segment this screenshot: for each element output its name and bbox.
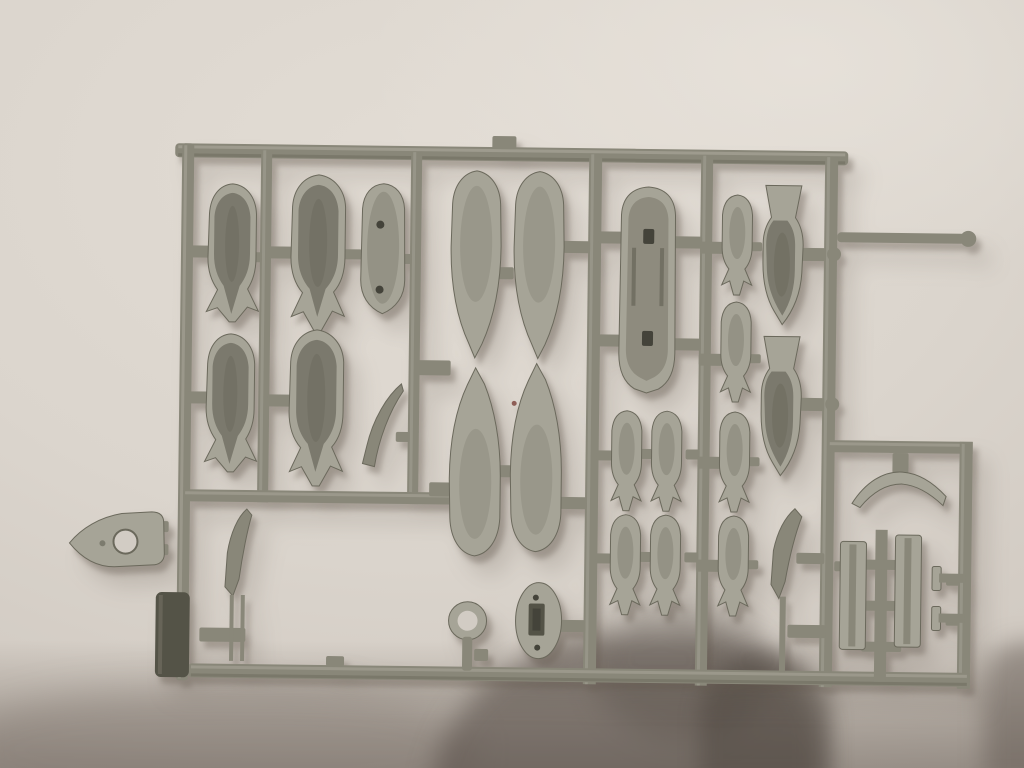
bomb-small-e2 xyxy=(720,302,751,402)
bomb-half-a1 xyxy=(206,184,260,323)
bomb-half-b1 xyxy=(290,175,346,332)
droptank-half-c3 xyxy=(448,368,501,557)
sprue-gate xyxy=(595,553,611,563)
sprue-gate xyxy=(800,248,826,261)
droptank-half-c2 xyxy=(513,171,565,359)
sprue-gate xyxy=(186,391,208,403)
bomb-small-d5 xyxy=(650,515,681,615)
tank-half-d1 xyxy=(618,187,677,394)
bomb-small-e3 xyxy=(719,412,750,512)
sprue-gate xyxy=(417,360,451,375)
runner-vertical-b xyxy=(257,150,272,502)
photo-of-model-kit-sprue xyxy=(0,0,1024,768)
sprue-gate xyxy=(700,242,724,254)
sprue-gate xyxy=(674,236,702,248)
runner-box-right xyxy=(957,442,973,689)
ring-i1 xyxy=(448,602,489,671)
sprue-gate xyxy=(199,627,245,642)
sprue-gate xyxy=(673,338,701,350)
oval-plate-i2 xyxy=(515,582,562,659)
sprue-gate xyxy=(597,450,613,460)
sprue-gate xyxy=(697,457,721,469)
bomb-finned-half-f1 xyxy=(762,185,804,324)
injection-gate-stub xyxy=(837,229,976,247)
bomb-small-e4 xyxy=(718,516,749,616)
fin-b4 xyxy=(362,383,403,466)
sprue-gate xyxy=(787,625,825,638)
bomb-small-d2 xyxy=(611,411,642,511)
bomb-half-a2 xyxy=(204,334,258,473)
sprue-gate xyxy=(696,560,720,572)
bomb-finned-half-f2 xyxy=(760,336,802,475)
strip-g2b xyxy=(894,535,921,647)
sprue-gate xyxy=(562,241,590,253)
strip-g2a xyxy=(839,541,866,649)
sprue-gate xyxy=(559,497,587,509)
sprue-gate xyxy=(396,432,410,442)
droptank-half-c4 xyxy=(509,363,562,552)
tank-half-b3 xyxy=(360,183,406,314)
droptank-half-c1 xyxy=(450,171,502,359)
wing-fairing-g1 xyxy=(852,471,946,508)
sprue-gate xyxy=(892,453,908,473)
runner-bottom xyxy=(188,663,970,687)
runner-box-top xyxy=(828,440,973,454)
sprue-gate xyxy=(429,482,451,496)
blade-f3 xyxy=(770,508,802,672)
dark-plate-h2 xyxy=(155,592,190,677)
sprue-gate xyxy=(684,552,698,562)
sprue-gate xyxy=(269,246,293,258)
bomb-small-d3 xyxy=(651,411,682,511)
moulding-tab-top xyxy=(492,136,516,149)
arrow-plate-h1 xyxy=(69,511,165,567)
red-speck xyxy=(512,401,517,406)
sprue-gate xyxy=(597,334,621,346)
bomb-small-e1 xyxy=(722,195,753,295)
runner-vertical-c xyxy=(407,152,422,504)
sprue-gate xyxy=(796,553,824,564)
runner-vertical-e xyxy=(695,156,713,686)
sprue-gate xyxy=(686,449,700,459)
sprue-gate xyxy=(190,245,210,257)
sprue-gate xyxy=(267,394,291,406)
sprue-gate xyxy=(798,398,824,411)
moulding-tab-bottom xyxy=(326,656,344,666)
bomb-small-d4 xyxy=(610,515,641,615)
runner-right xyxy=(819,157,838,687)
sprue-gate xyxy=(699,354,723,366)
sprue-gate xyxy=(598,231,622,243)
sprue-frame xyxy=(0,0,1024,768)
bomb-half-b2 xyxy=(288,330,344,487)
